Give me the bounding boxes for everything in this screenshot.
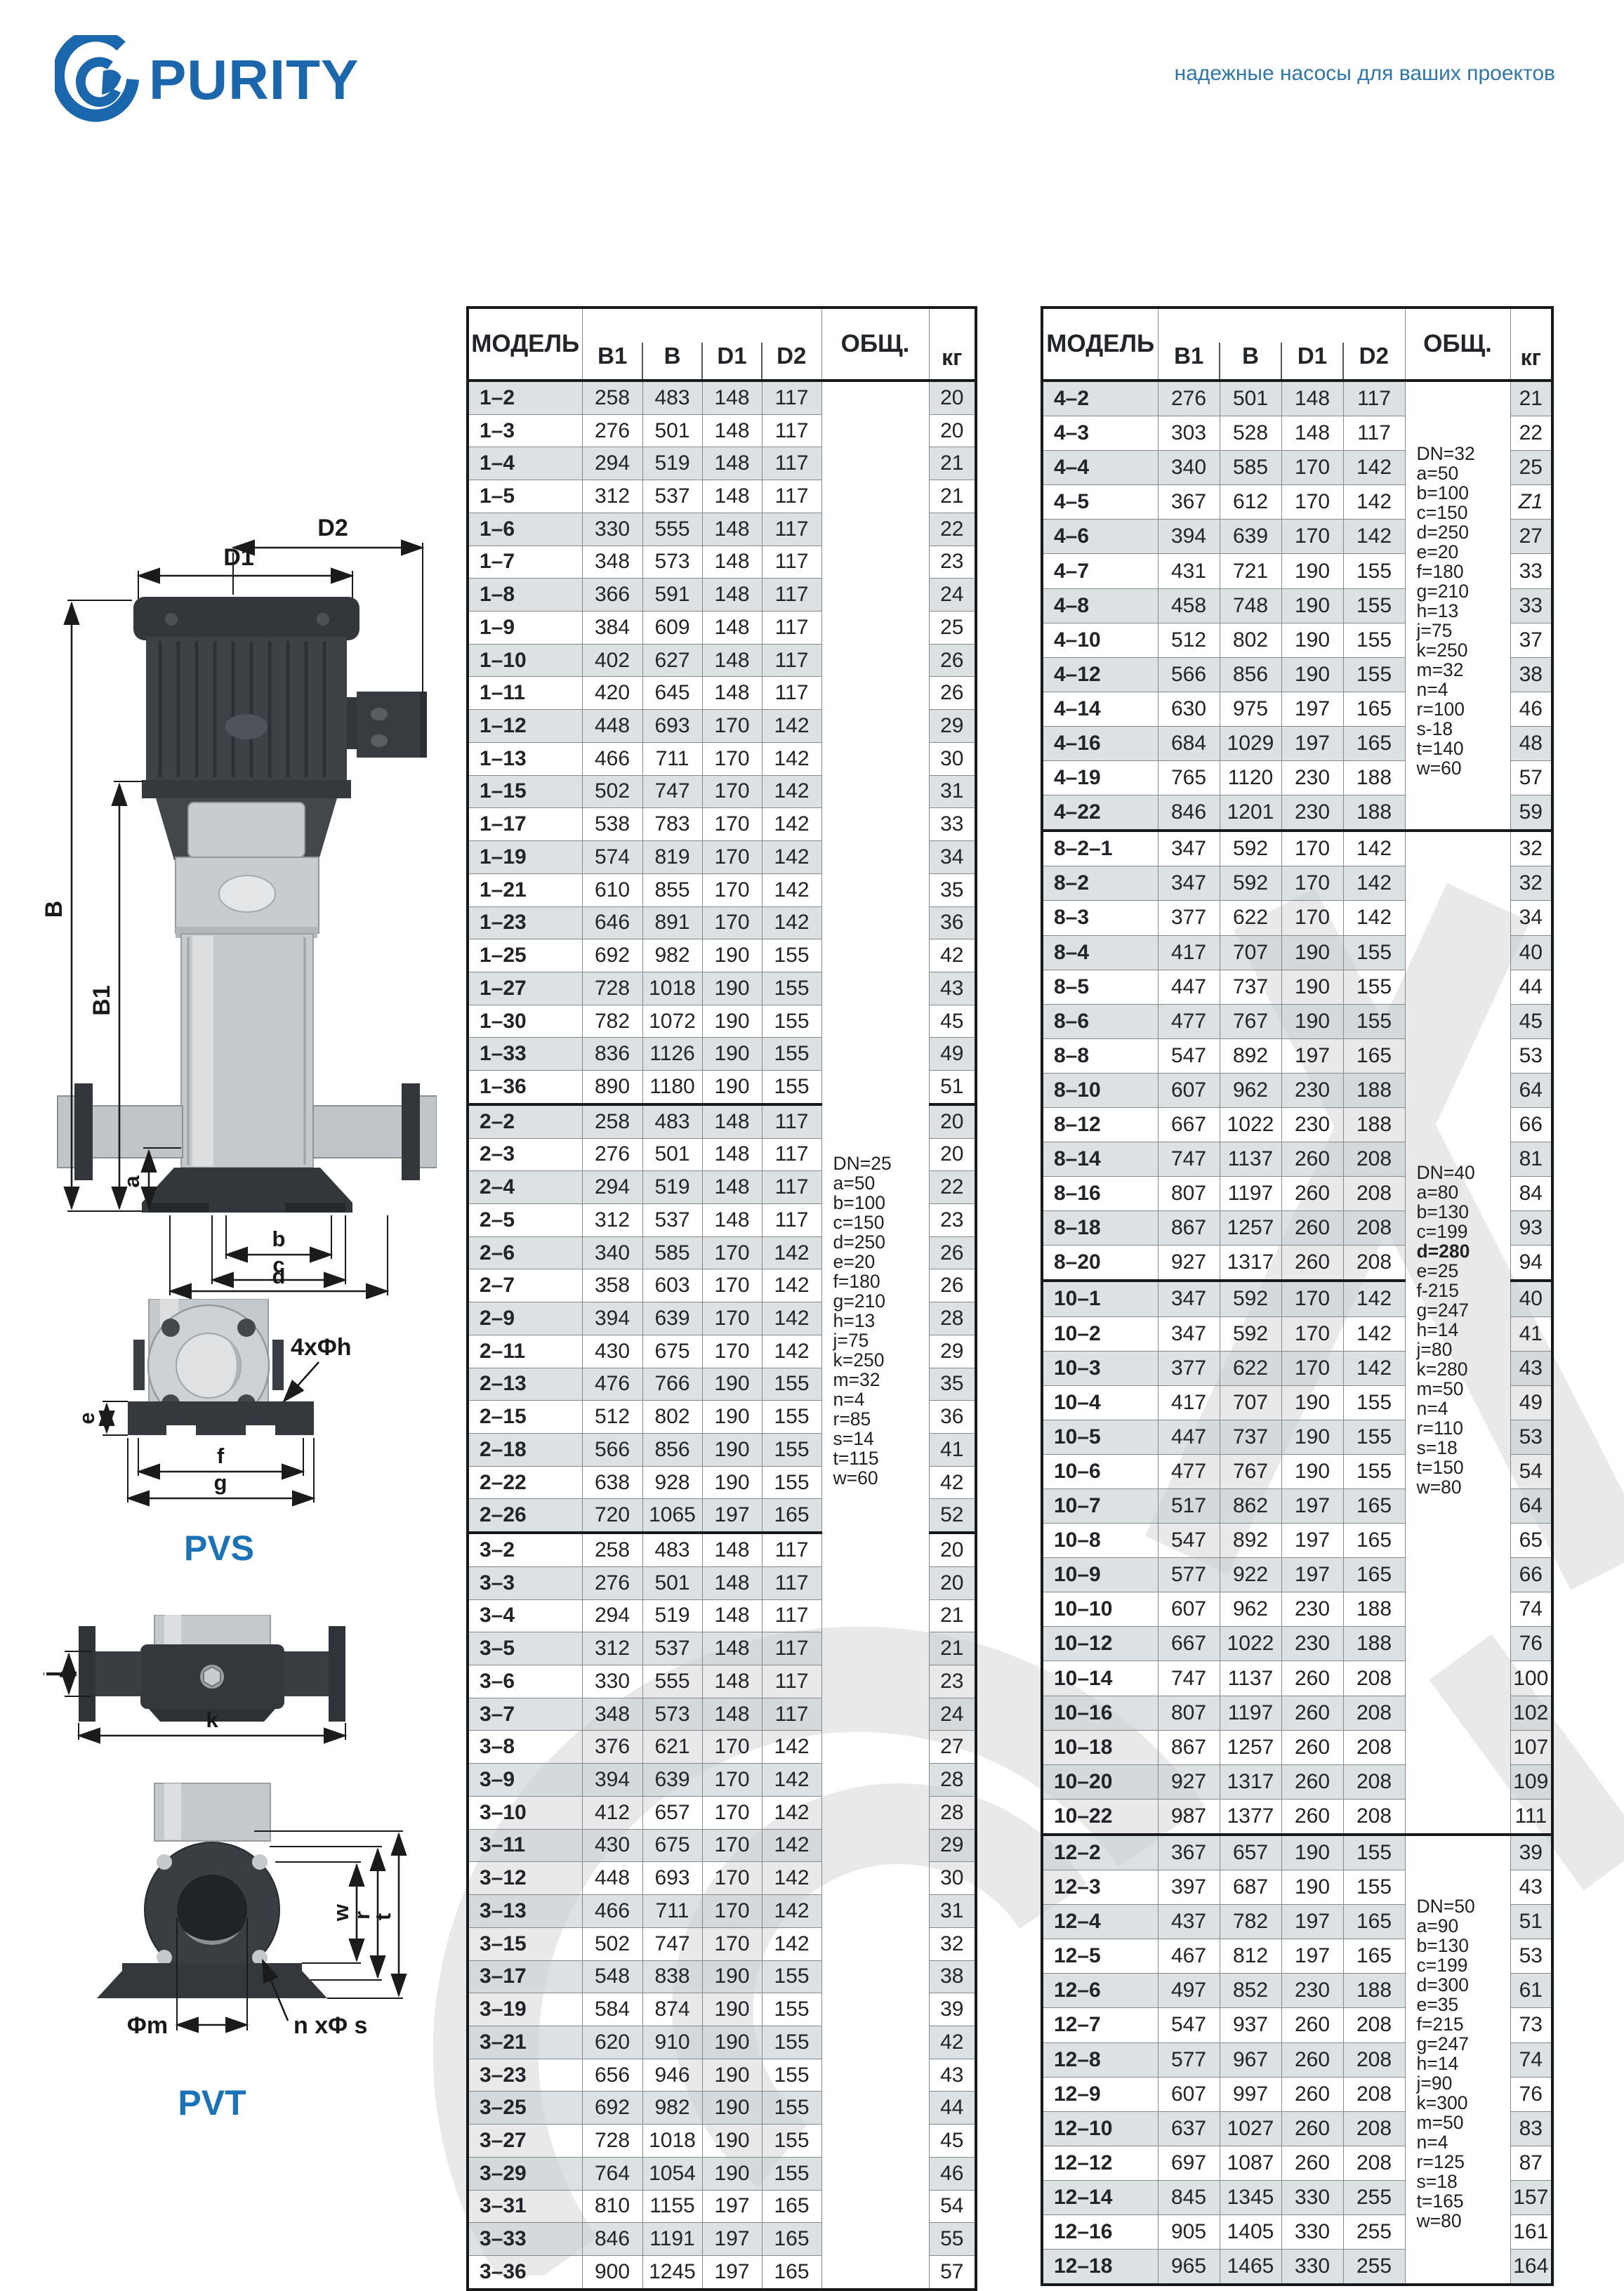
b1-cell: 807 (1158, 1177, 1220, 1211)
b-cell: 537 (642, 1203, 702, 1236)
kg-cell: 34 (1510, 901, 1552, 935)
model-cell: 1–5 (468, 480, 582, 513)
note-line: f-215 (1417, 1281, 1511, 1300)
d1-cell: 190 (1281, 1420, 1343, 1454)
kg-cell: 22 (929, 1171, 976, 1204)
d2-cell: 142 (762, 1236, 821, 1269)
b1-cell: 547 (1158, 1524, 1220, 1558)
kg-cell: 64 (1510, 1489, 1552, 1524)
table-row: 1–2258483148117DN=25a=50b=100c=150d=250e… (468, 381, 976, 414)
d2-cell: 165 (1343, 1905, 1405, 1939)
model-cell: 3–12 (468, 1862, 582, 1895)
d2-cell: 142 (762, 1927, 821, 1960)
b1-cell: 547 (1158, 1038, 1220, 1073)
kg-cell: 28 (929, 1764, 976, 1797)
dim-label-f: f (217, 1444, 225, 1468)
d2-cell: 155 (1343, 554, 1405, 588)
b-cell: 693 (642, 1862, 702, 1895)
note-line: d=250 (833, 1232, 927, 1252)
b1-cell: 747 (1158, 1661, 1220, 1696)
b1-cell: 366 (582, 579, 642, 612)
d1-cell: 170 (702, 1895, 762, 1928)
model-cell: 4–10 (1042, 623, 1158, 657)
model-cell: 12–9 (1042, 2077, 1158, 2111)
d2-cell: 155 (762, 939, 821, 972)
b-cell: 819 (642, 841, 702, 874)
model-cell: 1–27 (468, 972, 582, 1005)
d1-cell: 170 (1281, 520, 1343, 554)
d2-cell: 117 (762, 1698, 821, 1731)
note-line: d=280 (1417, 1241, 1511, 1261)
b1-cell: 512 (1158, 623, 1220, 657)
col-header-b1: B1 (582, 308, 642, 381)
model-cell: 4–19 (1042, 761, 1158, 795)
kg-cell: 39 (929, 1993, 976, 2026)
note-line: g=210 (1417, 581, 1511, 601)
col-header-d2: D2 (1343, 308, 1405, 381)
d2-cell: 188 (1343, 1592, 1405, 1627)
d1-cell: 148 (702, 1632, 762, 1665)
b-cell: 855 (642, 873, 702, 906)
dim-label-t: t (371, 1913, 395, 1920)
b-cell: 483 (642, 1104, 702, 1138)
model-cell: 3–29 (468, 2157, 582, 2190)
d1-cell: 260 (1281, 2077, 1343, 2111)
kg-cell: 102 (1510, 1696, 1552, 1730)
b-cell: 892 (1220, 1038, 1281, 1073)
note-line: s=18 (1417, 2172, 1511, 2191)
b1-cell: 330 (582, 1665, 642, 1698)
b1-cell: 728 (582, 2125, 642, 2158)
d1-cell: 148 (702, 1665, 762, 1698)
table-row: 8–2–1347592170142DN=40a=80b=130c=199d=28… (1042, 831, 1552, 866)
kg-cell: 21 (1510, 381, 1552, 416)
model-cell: 2–2 (468, 1104, 582, 1138)
kg-cell: 27 (929, 1731, 976, 1764)
d2-cell: 255 (1343, 2250, 1405, 2285)
b1-cell: 577 (1158, 2042, 1220, 2077)
model-cell: 1–23 (468, 906, 582, 939)
b1-cell: 728 (582, 972, 642, 1005)
b1-cell: 347 (1158, 866, 1220, 901)
note-line: m=32 (1417, 660, 1511, 680)
b-cell: 501 (1220, 381, 1281, 416)
d2-cell: 165 (762, 2255, 821, 2289)
kg-cell: 64 (1510, 1073, 1552, 1107)
b-cell: 767 (1220, 1004, 1281, 1038)
b1-cell: 764 (582, 2157, 642, 2190)
d1-cell: 230 (1281, 1107, 1343, 1142)
d1-cell: 330 (1281, 2180, 1343, 2214)
d1-cell: 190 (1281, 1004, 1343, 1038)
col-header-model: МОДЕЛЬ (1042, 308, 1158, 381)
note-line: g=247 (1417, 1300, 1511, 1320)
b1-cell: 384 (582, 612, 642, 645)
note-line: b=130 (1417, 1202, 1511, 1222)
model-cell: 12–8 (1042, 2042, 1158, 2077)
model-cell: 3–11 (468, 1829, 582, 1862)
b1-cell: 846 (1158, 795, 1220, 831)
b-cell: 657 (642, 1796, 702, 1829)
kg-cell: 57 (929, 2255, 976, 2289)
note-line: j=75 (833, 1331, 927, 1350)
d2-cell: 155 (762, 1005, 821, 1038)
model-cell: 2–11 (468, 1335, 582, 1368)
model-cell: 12–16 (1042, 2214, 1158, 2249)
note-line: e=20 (1417, 542, 1511, 562)
kg-cell: 74 (1510, 2042, 1552, 2077)
b-cell: 737 (1220, 1420, 1281, 1454)
b1-cell: 782 (582, 1005, 642, 1038)
d1-cell: 197 (1281, 1489, 1343, 1524)
kg-cell: 43 (1510, 1870, 1552, 1905)
kg-cell: 23 (929, 1203, 976, 1236)
dim-label-phi-m: Φm (127, 2012, 168, 2039)
kg-cell: 46 (1510, 692, 1552, 726)
d2-cell: 208 (1343, 2077, 1405, 2111)
model-cell: 2–22 (468, 1466, 582, 1499)
b-cell: 609 (642, 612, 702, 645)
model-cell: 4–2 (1042, 381, 1158, 416)
d2-cell: 155 (1343, 657, 1405, 692)
d2-cell: 142 (762, 873, 821, 906)
d2-cell: 155 (762, 1038, 821, 1071)
kg-cell: Z1 (1510, 485, 1552, 520)
b-cell: 982 (642, 939, 702, 972)
b-cell: 1065 (642, 1499, 702, 1533)
model-cell: 8–8 (1042, 1038, 1158, 1073)
d1-cell: 190 (1281, 588, 1343, 623)
notes-cell: DN=25a=50b=100c=150d=250e=20f=180g=210h=… (821, 381, 929, 2290)
d2-cell: 155 (762, 2059, 821, 2092)
d2-cell: 208 (1343, 2146, 1405, 2180)
b-cell: 1377 (1220, 1799, 1281, 1835)
note-line: c=150 (833, 1213, 927, 1232)
b1-cell: 466 (582, 1895, 642, 1928)
kg-cell: 31 (929, 1895, 976, 1928)
table-row: 4–2276501148117DN=32a=50b=100c=150d=250e… (1042, 381, 1552, 416)
note-line: m=50 (1417, 1379, 1511, 1399)
b-cell: 891 (642, 906, 702, 939)
b1-cell: 497 (1158, 1974, 1220, 2008)
d1-cell: 148 (1281, 381, 1343, 416)
d1-cell: 197 (702, 2190, 762, 2223)
d1-cell: 260 (1281, 2146, 1343, 2180)
col-header-d1: D1 (702, 308, 762, 381)
model-cell: 3–4 (468, 1599, 582, 1632)
note-line: b=100 (1417, 483, 1511, 503)
kg-cell: 20 (929, 1533, 976, 1566)
b1-cell: 394 (582, 1764, 642, 1797)
kg-cell: 23 (929, 1665, 976, 1698)
d2-cell: 208 (1343, 2008, 1405, 2042)
note-line: n=4 (833, 1389, 927, 1409)
model-cell: 2–7 (468, 1269, 582, 1302)
b1-cell: 276 (1158, 381, 1220, 416)
model-cell: 1–15 (468, 775, 582, 808)
b-cell: 483 (642, 1533, 702, 1566)
d2-cell: 188 (1343, 1107, 1405, 1142)
d1-cell: 170 (702, 1764, 762, 1797)
d2-cell: 155 (762, 1993, 821, 2026)
b1-cell: 692 (582, 2092, 642, 2125)
dim-label-k: k (206, 1708, 218, 1732)
d1-cell: 148 (702, 447, 762, 480)
d1-cell: 148 (702, 1203, 762, 1236)
brand-name: PURITY (149, 52, 359, 108)
d2-cell: 208 (1343, 1730, 1405, 1764)
kg-cell: 52 (929, 1499, 976, 1533)
b-cell: 592 (1220, 831, 1281, 866)
b-cell: 1191 (642, 2223, 702, 2256)
model-cell: 3–15 (468, 1927, 582, 1960)
kg-cell: 87 (1510, 2146, 1552, 2180)
b1-cell: 836 (582, 1038, 642, 1071)
b-cell: 585 (642, 1236, 702, 1269)
kg-cell: 30 (929, 742, 976, 775)
b1-cell: 765 (1158, 761, 1220, 795)
kg-cell: 107 (1510, 1730, 1552, 1764)
kg-cell: 42 (929, 2026, 976, 2059)
kg-cell: 20 (929, 1566, 976, 1599)
b-cell: 657 (1220, 1835, 1281, 1870)
model-cell: 3–5 (468, 1632, 582, 1665)
d1-cell: 148 (702, 546, 762, 579)
kg-cell: 30 (929, 1862, 976, 1895)
b1-cell: 276 (582, 1566, 642, 1599)
note-line: w=60 (833, 1468, 927, 1488)
note-line: g=210 (833, 1291, 927, 1311)
b1-cell: 584 (582, 1993, 642, 2026)
b-cell: 711 (642, 742, 702, 775)
kg-cell: 23 (929, 546, 976, 579)
model-cell: 8–2 (1042, 866, 1158, 901)
model-cell: 4–6 (1042, 520, 1158, 554)
d2-cell: 155 (762, 2026, 821, 2059)
brand-logo-icon (55, 35, 145, 125)
b-cell: 537 (642, 480, 702, 513)
d1-cell: 190 (702, 939, 762, 972)
b-cell: 862 (1220, 1489, 1281, 1524)
d1-cell: 190 (702, 2092, 762, 2125)
d1-cell: 190 (1281, 1835, 1343, 1870)
kg-cell: 20 (929, 381, 976, 414)
d1-cell: 170 (702, 1731, 762, 1764)
d2-cell: 188 (1343, 1073, 1405, 1107)
b1-cell: 377 (1158, 1351, 1220, 1385)
d2-cell: 142 (762, 1862, 821, 1895)
b-cell: 591 (642, 579, 702, 612)
d1-cell: 190 (1281, 970, 1343, 1004)
model-cell: 10–3 (1042, 1351, 1158, 1385)
b1-cell: 630 (1158, 692, 1220, 726)
b1-cell: 547 (1158, 2008, 1220, 2042)
b-cell: 1022 (1220, 1107, 1281, 1142)
d2-cell: 165 (762, 2223, 821, 2256)
model-cell: 10–2 (1042, 1316, 1158, 1351)
d1-cell: 170 (702, 906, 762, 939)
d1-cell: 148 (702, 480, 762, 513)
model-cell: 4–16 (1042, 726, 1158, 760)
note-line: t=140 (1417, 739, 1511, 758)
b-cell: 767 (1220, 1454, 1281, 1488)
kg-cell: 22 (929, 513, 976, 546)
model-cell: 2–6 (468, 1236, 582, 1269)
dim-label-B1: B1 (88, 985, 115, 1015)
d1-cell: 148 (702, 513, 762, 546)
model-cell: 10–12 (1042, 1627, 1158, 1661)
d1-cell: 230 (1281, 1627, 1343, 1661)
model-cell: 12–5 (1042, 1939, 1158, 1974)
b1-cell: 965 (1158, 2250, 1220, 2285)
b-cell: 783 (642, 808, 702, 841)
kg-cell: 161 (1510, 2214, 1552, 2249)
d1-cell: 260 (1281, 1696, 1343, 1730)
model-cell: 8–18 (1042, 1211, 1158, 1246)
model-cell: 10–6 (1042, 1454, 1158, 1488)
b1-cell: 276 (582, 414, 642, 447)
note-line: w=80 (1417, 2211, 1511, 2231)
b1-cell: 512 (582, 1401, 642, 1434)
d1-cell: 170 (1281, 1316, 1343, 1351)
model-cell: 1–9 (468, 612, 582, 645)
note-line: DN=32 (1417, 444, 1511, 463)
kg-cell: 43 (1510, 1351, 1552, 1385)
b1-cell: 566 (582, 1434, 642, 1467)
kg-cell: 34 (929, 841, 976, 874)
d1-cell: 190 (702, 1368, 762, 1401)
b-cell: 1405 (1220, 2214, 1281, 2249)
b-cell: 1257 (1220, 1211, 1281, 1246)
kg-cell: 43 (929, 972, 976, 1005)
d2-cell: 208 (1343, 1177, 1405, 1211)
b-cell: 856 (1220, 657, 1281, 692)
note-line: m=32 (833, 1370, 927, 1389)
d2-cell: 188 (1343, 761, 1405, 795)
kg-cell: 29 (929, 1829, 976, 1862)
b-cell: 922 (1220, 1558, 1281, 1592)
d2-cell: 188 (1343, 1627, 1405, 1661)
dim-label-d1: D1 (223, 544, 253, 571)
note-line: j=80 (1417, 1340, 1511, 1359)
b-cell: 962 (1220, 1073, 1281, 1107)
d2-cell: 142 (1343, 485, 1405, 520)
model-cell: 3–8 (468, 1731, 582, 1764)
d2-cell: 142 (1343, 451, 1405, 485)
b-cell: 555 (642, 1665, 702, 1698)
model-cell: 2–4 (468, 1171, 582, 1204)
model-cell: 1–25 (468, 939, 582, 972)
b-cell: 1345 (1220, 2180, 1281, 2214)
b-cell: 675 (642, 1335, 702, 1368)
d1-cell: 170 (702, 808, 762, 841)
note-line: m=50 (1417, 2113, 1511, 2132)
d2-cell: 142 (762, 1895, 821, 1928)
kg-cell: 42 (929, 1466, 976, 1499)
model-cell: 1–36 (468, 1071, 582, 1104)
d2-cell: 142 (762, 1731, 821, 1764)
b-cell: 592 (1220, 1316, 1281, 1351)
kg-cell: 21 (929, 1632, 976, 1665)
b-cell: 621 (642, 1731, 702, 1764)
model-cell: 3–19 (468, 1993, 582, 2026)
b-cell: 693 (642, 710, 702, 743)
b1-cell: 294 (582, 447, 642, 480)
b-cell: 802 (1220, 623, 1281, 657)
kg-cell: 66 (1510, 1558, 1552, 1592)
d1-cell: 170 (1281, 1351, 1343, 1385)
d1-cell: 148 (702, 677, 762, 710)
note-line: f=180 (1417, 562, 1511, 581)
brand-logo: PURITY (55, 35, 359, 125)
d1-cell: 170 (702, 873, 762, 906)
d1-cell: 190 (702, 2157, 762, 2190)
model-cell: 3–3 (468, 1566, 582, 1599)
kg-cell: 37 (1510, 623, 1552, 657)
model-cell: 1–6 (468, 513, 582, 546)
d1-cell: 148 (702, 1138, 762, 1171)
model-cell: 10–8 (1042, 1524, 1158, 1558)
notes-cell: DN=40a=80b=130c=199d=280e=25f-215g=247h=… (1405, 831, 1510, 1835)
b-cell: 627 (642, 644, 702, 677)
model-cell: 12–18 (1042, 2250, 1158, 2285)
d2-cell: 155 (1343, 1420, 1405, 1454)
b-cell: 1245 (642, 2255, 702, 2289)
d2-cell: 117 (762, 579, 821, 612)
d2-cell: 117 (762, 1104, 821, 1138)
kg-cell: 36 (929, 1401, 976, 1434)
d1-cell: 197 (1281, 1939, 1343, 1974)
d2-cell: 142 (1343, 901, 1405, 935)
model-cell: 3–2 (468, 1533, 582, 1566)
kg-cell: 157 (1510, 2180, 1552, 2214)
model-cell: 1–21 (468, 873, 582, 906)
d2-cell: 117 (762, 1599, 821, 1632)
b-cell: 1465 (1220, 2250, 1281, 2285)
model-cell: 8–12 (1042, 1107, 1158, 1142)
b1-cell: 867 (1158, 1211, 1220, 1246)
note-line: w=60 (1417, 758, 1511, 778)
b-cell: 1155 (642, 2190, 702, 2223)
b1-cell: 927 (1158, 1246, 1220, 1281)
d1-cell: 190 (702, 1434, 762, 1467)
model-cell: 3–23 (468, 2059, 582, 2092)
note-line: e=35 (1417, 1995, 1511, 2014)
d2-cell: 155 (1343, 623, 1405, 657)
kg-cell: 38 (1510, 657, 1552, 692)
d1-cell: 260 (1281, 1730, 1343, 1764)
kg-cell: 66 (1510, 1107, 1552, 1142)
d2-cell: 117 (762, 612, 821, 645)
d2-cell: 255 (1343, 2180, 1405, 2214)
b1-cell: 927 (1158, 1764, 1220, 1799)
b1-cell: 538 (582, 808, 642, 841)
b-cell: 622 (1220, 901, 1281, 935)
model-cell: 1–7 (468, 546, 582, 579)
d2-cell: 155 (762, 1434, 821, 1467)
d2-cell: 208 (1343, 1764, 1405, 1799)
suction-port (90, 1106, 183, 1158)
kg-cell: 41 (929, 1434, 976, 1467)
note-line: c=199 (1417, 1222, 1511, 1241)
b1-cell: 620 (582, 2026, 642, 2059)
note-line: r=100 (1417, 699, 1511, 719)
b1-cell: 397 (1158, 1870, 1220, 1905)
kg-cell: 31 (929, 775, 976, 808)
b-cell: 982 (642, 2092, 702, 2125)
model-cell: 2–5 (468, 1203, 582, 1236)
kg-cell: 45 (929, 1005, 976, 1038)
